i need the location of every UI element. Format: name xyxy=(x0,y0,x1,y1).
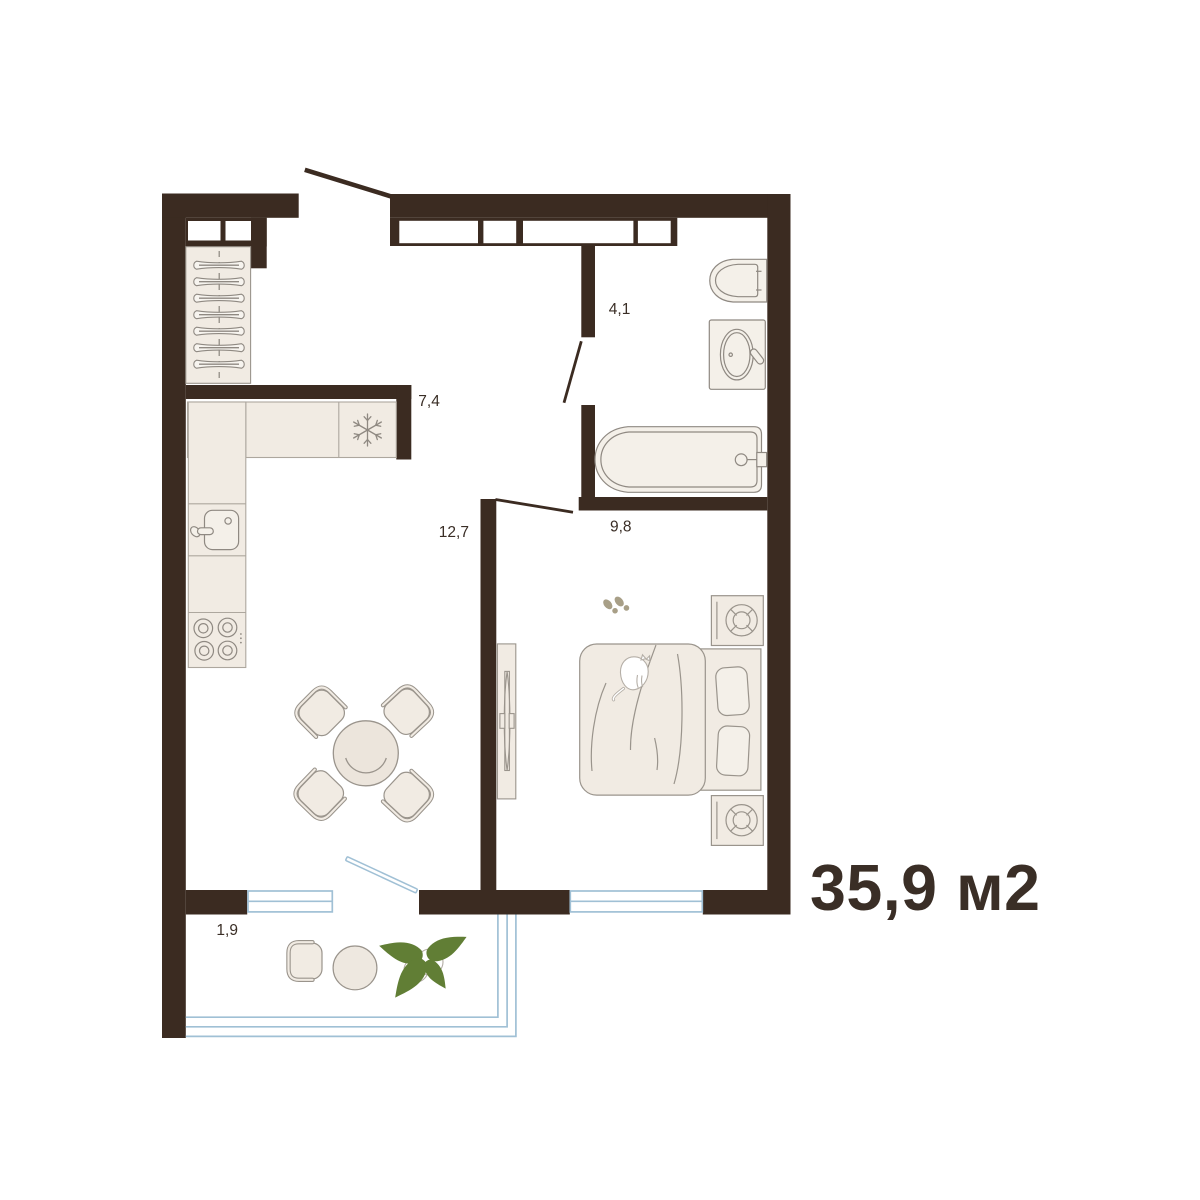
svg-text:1,9: 1,9 xyxy=(216,922,238,939)
svg-text:4,1: 4,1 xyxy=(609,301,631,318)
svg-text:9,8: 9,8 xyxy=(610,518,632,535)
svg-text:7,4: 7,4 xyxy=(418,393,440,410)
svg-text:12,7: 12,7 xyxy=(439,524,469,541)
svg-text:35,9 м2: 35,9 м2 xyxy=(810,852,1041,924)
